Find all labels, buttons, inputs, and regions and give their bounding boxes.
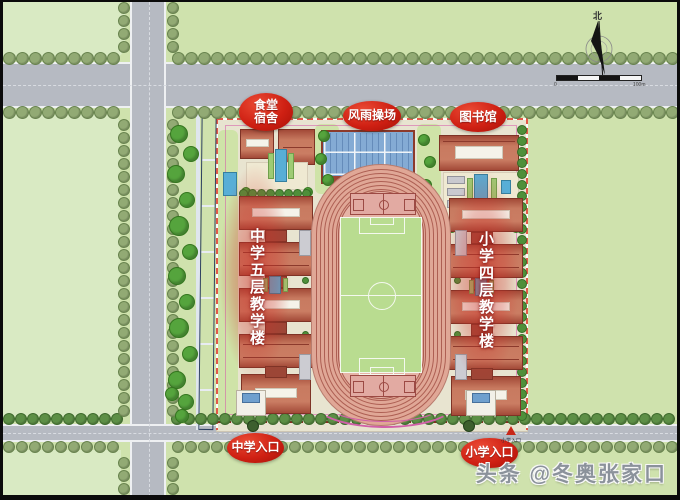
badge-text: 宿舍 bbox=[254, 112, 278, 125]
tree-icon bbox=[198, 52, 211, 65]
tree-icon bbox=[328, 106, 341, 119]
tree-icon bbox=[211, 106, 224, 119]
tree-icon bbox=[198, 441, 210, 453]
tree-icon bbox=[418, 134, 430, 146]
tree-icon bbox=[172, 52, 185, 65]
tree-icon bbox=[653, 52, 666, 65]
tree-icon bbox=[118, 262, 130, 274]
tree-icon bbox=[172, 106, 185, 119]
school-site-plan: 中学五层教学楼 小学四层教学楼 食堂 宿舍 风雨操场 图书馆 中学入口 小学入口… bbox=[0, 0, 680, 500]
tree-icon bbox=[432, 441, 444, 453]
court-key bbox=[353, 199, 364, 211]
center-circle bbox=[368, 282, 396, 310]
tree-icon bbox=[27, 413, 39, 425]
tree-icon bbox=[380, 52, 393, 65]
tree-icon bbox=[118, 366, 130, 378]
tree-icon bbox=[536, 106, 549, 119]
tree-icon bbox=[207, 413, 219, 425]
tree-icon bbox=[614, 106, 627, 119]
tree-icon bbox=[445, 52, 458, 65]
scale-start: 0 bbox=[554, 82, 557, 88]
court-key bbox=[404, 199, 415, 211]
tree-icon bbox=[167, 483, 179, 495]
tree-icon bbox=[380, 441, 392, 453]
tree-icon bbox=[510, 52, 523, 65]
roof-ridge bbox=[443, 141, 515, 142]
tree-icon bbox=[169, 318, 189, 338]
tree-icon bbox=[175, 409, 189, 423]
tree-icon bbox=[195, 413, 207, 425]
tree-icon bbox=[107, 52, 120, 65]
tree-icon bbox=[118, 119, 130, 131]
primary-school-building-label: 小学四层教学楼 bbox=[475, 231, 496, 350]
tree-icon bbox=[640, 441, 652, 453]
tree-icon bbox=[575, 106, 588, 119]
tree-icon bbox=[172, 441, 184, 453]
tree-icon bbox=[39, 413, 51, 425]
tree-icon bbox=[315, 106, 328, 119]
roof-ridge bbox=[283, 147, 312, 148]
tree-icon bbox=[424, 156, 436, 168]
tree-icon bbox=[601, 441, 613, 453]
tree-icon bbox=[118, 457, 130, 469]
tree-icon bbox=[16, 52, 29, 65]
tree-icon bbox=[639, 413, 651, 425]
tree-icon bbox=[315, 153, 327, 165]
tree-icon bbox=[471, 52, 484, 65]
tree-icon bbox=[575, 441, 587, 453]
tree-icon bbox=[250, 52, 263, 65]
tree-icon bbox=[167, 165, 185, 183]
tree-icon bbox=[640, 52, 653, 65]
tree-icon bbox=[393, 52, 406, 65]
tree-icon bbox=[55, 441, 67, 453]
tree-icon bbox=[167, 249, 179, 261]
tree-icon bbox=[237, 52, 250, 65]
bleacher-stand bbox=[299, 354, 311, 380]
tree-icon bbox=[303, 413, 315, 425]
tree-icon bbox=[523, 106, 536, 119]
tree-icon bbox=[627, 52, 640, 65]
tree-icon bbox=[55, 106, 68, 119]
blue-canopy-building bbox=[198, 114, 216, 430]
gatehouse-middle-school bbox=[236, 390, 266, 416]
tree-icon bbox=[567, 413, 579, 425]
tree-icon bbox=[523, 52, 536, 65]
tree-icon bbox=[42, 106, 55, 119]
tree-icon bbox=[653, 441, 665, 453]
tree-icon bbox=[315, 441, 327, 453]
goal-box bbox=[370, 367, 394, 375]
tree-icon bbox=[588, 441, 600, 453]
tree-icon bbox=[484, 52, 497, 65]
basketball-court bbox=[350, 375, 416, 397]
tree-icon bbox=[99, 413, 111, 425]
tree-icon bbox=[328, 52, 341, 65]
tree-icon bbox=[81, 441, 93, 453]
tree-icon bbox=[118, 301, 130, 313]
tree-icon bbox=[263, 52, 276, 65]
tree-icon bbox=[562, 106, 575, 119]
tree-icon bbox=[328, 441, 340, 453]
tree-icon bbox=[419, 52, 432, 65]
tree-icon bbox=[510, 106, 523, 119]
grass-block-west bbox=[3, 114, 120, 417]
tree-icon bbox=[302, 277, 309, 284]
tree-icon bbox=[179, 192, 195, 208]
tree-icon bbox=[536, 441, 548, 453]
tree-icon bbox=[666, 441, 678, 453]
tree-icon bbox=[432, 52, 445, 65]
tree-icon bbox=[3, 52, 16, 65]
tree-icon bbox=[211, 52, 224, 65]
tree-icon bbox=[42, 441, 54, 453]
tree-icon bbox=[224, 106, 237, 119]
entrance-marker-label: 小学入口 bbox=[501, 437, 521, 444]
tree-icon bbox=[118, 327, 130, 339]
tree-icon bbox=[183, 146, 199, 162]
tree-icon bbox=[167, 340, 179, 352]
tree-icon bbox=[463, 420, 475, 432]
skylight-strip bbox=[246, 139, 269, 147]
tree-icon bbox=[118, 288, 130, 300]
tree-icon bbox=[627, 441, 639, 453]
tree-icon bbox=[291, 413, 303, 425]
middle-school-building-label: 中学五层教学楼 bbox=[246, 228, 267, 347]
tree-icon bbox=[198, 106, 211, 119]
tree-icon bbox=[118, 392, 130, 404]
tree-icon bbox=[118, 158, 130, 170]
tree-icon bbox=[588, 106, 601, 119]
tree-icon bbox=[118, 132, 130, 144]
tree-icon bbox=[167, 288, 179, 300]
tree-icon bbox=[651, 413, 663, 425]
tree-icon bbox=[615, 413, 627, 425]
tree-icon bbox=[118, 15, 130, 27]
tree-icon bbox=[562, 441, 574, 453]
tree-icon bbox=[517, 125, 527, 135]
tree-icon bbox=[55, 52, 68, 65]
tree-icon bbox=[627, 413, 639, 425]
soccer-field bbox=[340, 217, 422, 373]
tree-icon bbox=[517, 136, 527, 146]
tree-icon bbox=[185, 441, 197, 453]
tree-icon bbox=[167, 28, 179, 40]
watermark: 头条 @冬奥张家口 bbox=[476, 458, 667, 488]
tree-icon bbox=[68, 52, 81, 65]
tree-icon bbox=[549, 106, 562, 119]
badge-text: 图书馆 bbox=[459, 110, 497, 124]
tree-icon bbox=[167, 470, 179, 482]
tree-icon bbox=[118, 483, 130, 495]
tree-icon bbox=[118, 353, 130, 365]
tree-icon bbox=[167, 184, 179, 196]
tree-icon bbox=[29, 52, 42, 65]
tree-icon bbox=[63, 413, 75, 425]
tree-icon bbox=[179, 294, 195, 310]
tree-icon bbox=[497, 52, 510, 65]
tree-icon bbox=[419, 441, 431, 453]
tree-icon bbox=[81, 106, 94, 119]
tree-icon bbox=[419, 106, 432, 119]
tree-icon bbox=[341, 441, 353, 453]
tree-icon bbox=[279, 413, 291, 425]
tree-icon bbox=[640, 106, 653, 119]
tree-icon bbox=[406, 106, 419, 119]
tree-icon bbox=[167, 2, 179, 14]
tree-icon bbox=[211, 441, 223, 453]
tree-icon bbox=[523, 441, 535, 453]
gatehouse-primary-school bbox=[466, 390, 496, 416]
tree-icon bbox=[68, 441, 80, 453]
tree-icon bbox=[107, 441, 119, 453]
tree-icon bbox=[354, 52, 367, 65]
library-building bbox=[439, 135, 519, 171]
tree-icon bbox=[167, 15, 179, 27]
tree-icon bbox=[118, 41, 130, 53]
court-circle bbox=[379, 382, 389, 392]
tree-icon bbox=[167, 145, 179, 157]
road-centerline bbox=[3, 433, 680, 434]
tree-icon bbox=[302, 441, 314, 453]
tree-icon bbox=[549, 52, 562, 65]
tree-icon bbox=[354, 441, 366, 453]
badge-canteen-dorm: 食堂 宿舍 bbox=[239, 93, 293, 131]
tree-icon bbox=[167, 197, 179, 209]
tree-icon bbox=[666, 52, 679, 65]
scale-bar bbox=[556, 75, 642, 81]
tree-icon bbox=[118, 171, 130, 183]
road-centerline bbox=[3, 85, 680, 86]
tree-icon bbox=[579, 413, 591, 425]
tree-icon bbox=[182, 346, 198, 362]
tree-icon bbox=[167, 457, 179, 469]
tree-icon bbox=[3, 413, 15, 425]
tree-icon bbox=[167, 236, 179, 248]
tree-icon bbox=[178, 394, 194, 410]
tree-icon bbox=[118, 236, 130, 248]
tree-icon bbox=[29, 441, 41, 453]
tree-icon bbox=[614, 441, 626, 453]
tree-icon bbox=[51, 413, 63, 425]
tree-icon bbox=[167, 353, 179, 365]
tree-icon bbox=[663, 413, 675, 425]
tree-icon bbox=[406, 52, 419, 65]
tree-icon bbox=[170, 125, 188, 143]
tree-icon bbox=[562, 52, 575, 65]
tree-icon bbox=[165, 387, 179, 401]
tree-icon bbox=[517, 147, 527, 157]
badge-library: 图书馆 bbox=[450, 102, 506, 132]
tree-icon bbox=[87, 413, 99, 425]
tree-icon bbox=[666, 106, 679, 119]
tree-icon bbox=[315, 52, 328, 65]
tree-icon bbox=[75, 413, 87, 425]
scale-end: 100m bbox=[633, 82, 646, 88]
tree-icon bbox=[16, 441, 28, 453]
grass-block-southwest bbox=[3, 450, 121, 500]
tree-icon bbox=[445, 441, 457, 453]
tree-icon bbox=[289, 441, 301, 453]
tree-icon bbox=[393, 441, 405, 453]
tree-icon bbox=[3, 441, 15, 453]
tree-icon bbox=[247, 420, 259, 432]
tree-icon bbox=[302, 52, 315, 65]
tree-icon bbox=[224, 52, 237, 65]
tree-icon bbox=[94, 441, 106, 453]
road-centerline bbox=[149, 2, 150, 500]
tree-icon bbox=[549, 441, 561, 453]
tree-icon bbox=[458, 52, 471, 65]
tree-icon bbox=[627, 106, 640, 119]
badge-text: 风雨操场 bbox=[348, 109, 396, 122]
badge-text: 食堂 bbox=[254, 99, 278, 112]
tree-icon bbox=[185, 106, 198, 119]
tree-icon bbox=[185, 52, 198, 65]
tree-icon bbox=[653, 106, 666, 119]
tree-icon bbox=[68, 106, 81, 119]
badge-gym: 风雨操场 bbox=[343, 101, 401, 131]
basketball-court bbox=[350, 193, 416, 215]
tree-icon bbox=[94, 52, 107, 65]
boundary-west bbox=[216, 118, 218, 430]
tree-icon bbox=[531, 413, 543, 425]
tree-icon bbox=[118, 314, 130, 326]
north-arrow-icon bbox=[581, 19, 617, 83]
badge-text: 中学入口 bbox=[231, 441, 279, 454]
tree-icon bbox=[406, 441, 418, 453]
tree-icon bbox=[289, 52, 302, 65]
tree-icon bbox=[168, 267, 186, 285]
court-circle bbox=[379, 200, 389, 210]
tree-icon bbox=[167, 41, 179, 53]
tree-icon bbox=[118, 275, 130, 287]
tree-icon bbox=[29, 106, 42, 119]
tree-icon bbox=[543, 413, 555, 425]
tree-icon bbox=[118, 249, 130, 261]
tree-icon bbox=[118, 379, 130, 391]
bleacher-stand bbox=[299, 230, 311, 256]
tree-icon bbox=[517, 158, 527, 168]
tree-icon bbox=[167, 301, 179, 313]
grass-block-northwest bbox=[3, 2, 125, 59]
gatehouse-glass-roof bbox=[242, 393, 260, 403]
tree-icon bbox=[107, 106, 120, 119]
tree-icon bbox=[118, 184, 130, 196]
tree-icon bbox=[601, 106, 614, 119]
tree-icon bbox=[182, 244, 198, 260]
tree-icon bbox=[15, 413, 27, 425]
tree-icon bbox=[367, 52, 380, 65]
tree-icon bbox=[42, 52, 55, 65]
tree-icon bbox=[118, 210, 130, 222]
tree-icon bbox=[432, 106, 445, 119]
tree-icon bbox=[302, 106, 315, 119]
tree-icon bbox=[118, 223, 130, 235]
court-key bbox=[353, 381, 364, 393]
tree-icon bbox=[118, 28, 130, 40]
tree-icon bbox=[118, 2, 130, 14]
tree-icon bbox=[118, 340, 130, 352]
tree-icon bbox=[267, 413, 279, 425]
tree-icon bbox=[118, 405, 130, 417]
badge-middle-school-entrance: 中学入口 bbox=[227, 433, 284, 463]
tree-icon bbox=[591, 413, 603, 425]
tree-icon bbox=[118, 470, 130, 482]
tree-icon bbox=[276, 52, 289, 65]
tree-icon bbox=[367, 441, 379, 453]
tree-icon bbox=[603, 413, 615, 425]
tree-icon bbox=[16, 106, 29, 119]
skylight-strip bbox=[455, 146, 503, 159]
tree-icon bbox=[118, 145, 130, 157]
tree-icon bbox=[341, 52, 354, 65]
entrance-arrow-icon bbox=[506, 426, 516, 435]
tree-icon bbox=[94, 106, 107, 119]
tree-icon bbox=[3, 106, 16, 119]
tree-icon bbox=[318, 130, 330, 142]
tree-icon bbox=[81, 52, 94, 65]
tree-icon bbox=[219, 413, 231, 425]
tree-icon bbox=[555, 413, 567, 425]
tree-icon bbox=[118, 197, 130, 209]
goal-box bbox=[370, 217, 394, 225]
tree-icon bbox=[536, 52, 549, 65]
tree-icon bbox=[169, 216, 189, 236]
gatehouse-glass-roof bbox=[472, 393, 490, 403]
court-key bbox=[404, 381, 415, 393]
